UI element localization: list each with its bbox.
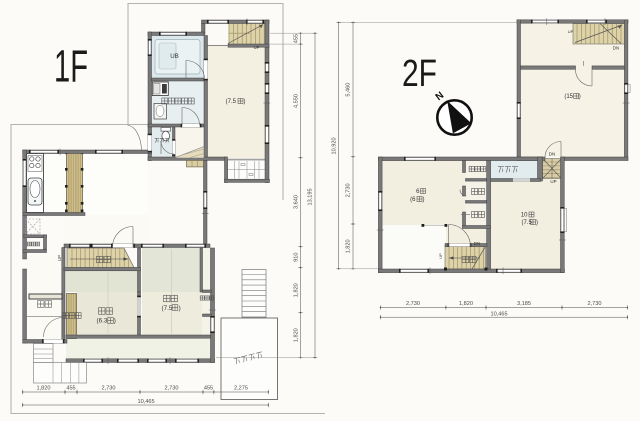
svg-text:3,185: 3,185 xyxy=(517,301,531,307)
svg-text:455: 455 xyxy=(204,386,213,392)
svg-text:4,550: 4,550 xyxy=(294,94,300,108)
svg-text:2,730: 2,730 xyxy=(102,386,116,392)
svg-text:10,465: 10,465 xyxy=(490,311,507,317)
svg-text:2,730: 2,730 xyxy=(588,301,602,307)
svg-text:10,465: 10,465 xyxy=(137,399,154,405)
svg-text:13,195: 13,195 xyxy=(308,188,314,205)
svg-text:UP: UP xyxy=(550,179,556,184)
svg-text:DN: DN xyxy=(474,241,481,246)
svg-text:UB: UB xyxy=(170,53,179,60)
svg-text:): ) xyxy=(179,305,181,312)
svg-text:10,920: 10,920 xyxy=(332,137,338,154)
svg-text:1,820: 1,820 xyxy=(37,386,51,392)
svg-text:UP: UP xyxy=(57,255,62,261)
svg-text:1F: 1F xyxy=(54,41,88,92)
svg-text:1,820: 1,820 xyxy=(294,283,300,297)
svg-text:): ) xyxy=(244,99,246,105)
svg-text:1,820: 1,820 xyxy=(294,328,300,342)
svg-text:UP: UP xyxy=(438,253,443,259)
svg-text:DN: DN xyxy=(549,152,556,157)
svg-text:): ) xyxy=(114,318,116,325)
svg-text:2,730: 2,730 xyxy=(346,183,352,197)
svg-text:(7.5: (7.5 xyxy=(162,305,173,312)
svg-text:): ) xyxy=(536,220,538,226)
svg-text:10: 10 xyxy=(521,213,528,219)
svg-text:455: 455 xyxy=(66,386,75,392)
svg-text:1,820: 1,820 xyxy=(459,301,473,307)
svg-text:2,730: 2,730 xyxy=(165,386,179,392)
svg-text:1,820: 1,820 xyxy=(346,239,352,253)
svg-text:(6: (6 xyxy=(410,197,416,203)
svg-text:2F: 2F xyxy=(402,53,437,95)
svg-text:): ) xyxy=(423,197,425,203)
svg-text:(7.5: (7.5 xyxy=(226,99,237,105)
svg-text:DN: DN xyxy=(613,46,620,51)
svg-text:UP: UP xyxy=(254,45,260,50)
svg-text:2,730: 2,730 xyxy=(406,301,420,307)
svg-text:5,460: 5,460 xyxy=(346,83,352,97)
svg-text:910: 910 xyxy=(294,253,300,262)
svg-text:(7.5: (7.5 xyxy=(522,220,533,226)
svg-text:(15: (15 xyxy=(564,94,573,100)
svg-text:455: 455 xyxy=(294,34,300,43)
svg-text:2,275: 2,275 xyxy=(234,386,248,392)
svg-text:): ) xyxy=(579,94,581,100)
svg-text:UP: UP xyxy=(568,29,574,34)
svg-text:(6.3: (6.3 xyxy=(97,318,108,325)
svg-text:3,640: 3,640 xyxy=(294,195,300,209)
